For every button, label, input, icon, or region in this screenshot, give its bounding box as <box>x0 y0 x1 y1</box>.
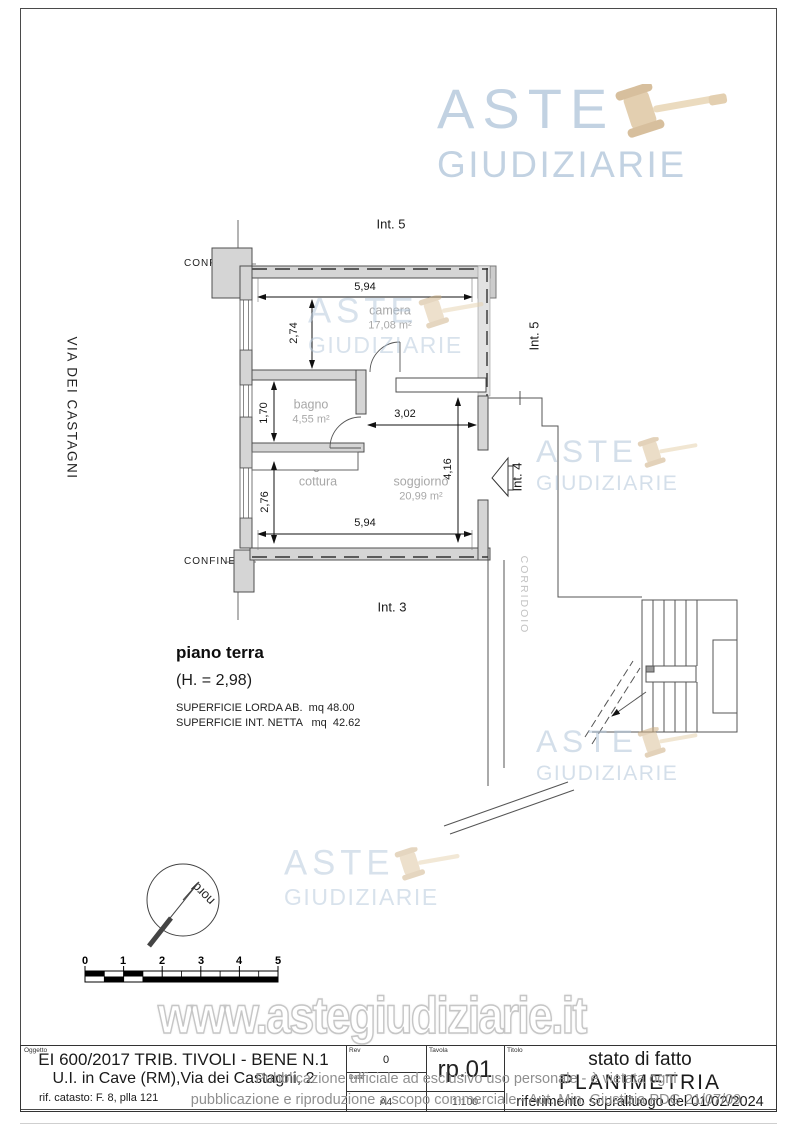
left-wall-windows <box>240 266 252 548</box>
scale-bar-graphic <box>85 966 278 982</box>
drawing-status: stato di fatto <box>504 1049 776 1071</box>
gavel-icon <box>609 84 729 149</box>
aste-giudiziarie-logo: ASTE GIUDIZIARIE <box>437 82 729 183</box>
interior-walls <box>252 370 486 470</box>
gavel-icon <box>634 437 702 474</box>
legal-disclaimer: Pubblicazione ufficiale ad esclusivo uso… <box>170 1069 762 1111</box>
aste-giudiziarie-watermark: ASTE GIUDIZIARIE <box>536 726 703 784</box>
gavel-icon <box>391 847 465 887</box>
aste-giudiziarie-watermark: ASTE GIUDIZIARIE <box>308 294 489 357</box>
rev-label: Rev <box>349 1047 361 1054</box>
disclaimer-line2: pubblicazione e riproduzione a scopo com… <box>170 1090 762 1111</box>
aste-giudiziarie-watermark: ASTE GIUDIZIARIE <box>284 846 465 909</box>
tavola-label: Tavola <box>429 1047 448 1054</box>
logo-text-giudiziarie: GIUDIZIARIE <box>437 146 729 183</box>
entrance-door-symbol <box>492 458 513 496</box>
disclaimer-line1: Pubblicazione ufficiale ad esclusivo uso… <box>170 1069 762 1090</box>
planimetria-page: Int. 5 Int. 5 Int. 4 Int. 3 CONFINE CONF… <box>0 0 800 1132</box>
cadastral-reference: rif. catasto: F. 8, plla 121 <box>39 1092 158 1104</box>
website-watermark: www.astegiudiziarie.it <box>158 986 586 1046</box>
rev-value: 0 <box>346 1054 426 1066</box>
aste-giudiziarie-watermark: ASTE GIUDIZIARIE <box>536 436 703 494</box>
compass <box>147 864 219 946</box>
procedure-reference: EI 600/2017 TRIB. TIVOLI - BENE N.1 <box>21 1050 346 1070</box>
gavel-icon <box>415 295 489 335</box>
logo-text-aste: ASTE <box>437 82 615 135</box>
gavel-icon <box>634 727 702 764</box>
